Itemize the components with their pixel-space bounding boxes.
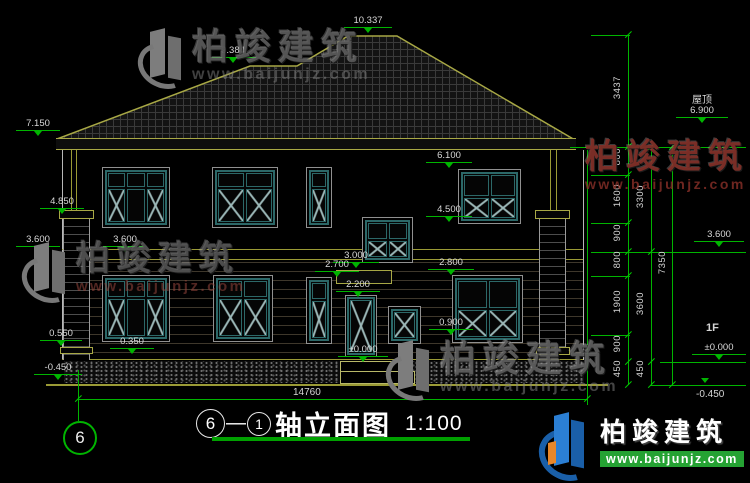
window-frame — [105, 278, 167, 339]
right-pilaster-cap — [535, 210, 570, 219]
dim-extension-line — [591, 223, 630, 224]
level-marker-floor2-b: 3.600 — [103, 235, 147, 252]
right-wall-edge — [583, 150, 584, 360]
window-frame — [105, 170, 167, 225]
dim-chain-line-2 — [651, 147, 652, 385]
dim-value: 900 — [612, 335, 623, 352]
roof-outline — [50, 30, 582, 148]
level-triangle-icon — [34, 131, 42, 136]
level-value: 2.700 — [315, 260, 359, 272]
company-logo: 柏竣建筑 www.baijunjz.com — [540, 412, 748, 480]
dim-value: 3437 — [612, 76, 623, 99]
level-marker-win2-head: 6.100 — [426, 151, 472, 168]
window-frame — [215, 170, 275, 225]
dim-tick — [625, 381, 632, 388]
company-logo-icon — [540, 412, 596, 476]
dim-value: 450 — [612, 360, 623, 377]
level-triangle-icon — [445, 163, 453, 168]
title-separator: — — [226, 412, 246, 435]
level-value: 0.350 — [110, 337, 154, 349]
level-triangle-icon — [701, 378, 709, 383]
level-value: 3.600 — [694, 230, 744, 242]
overall-dim-line — [78, 399, 588, 400]
level-triangle-icon — [333, 272, 341, 277]
level-value: 0.900 — [429, 318, 473, 330]
title-underline — [212, 437, 470, 441]
dim-extension-line — [650, 385, 746, 386]
dim-value: 900 — [612, 224, 623, 241]
level-triangle-icon — [229, 58, 237, 63]
company-website: www.baijunjz.com — [600, 451, 744, 467]
dim-value: 3600 — [635, 292, 646, 315]
level-value: ±0.000 — [338, 345, 388, 357]
title-axis-end-bubble: 1 — [247, 412, 271, 436]
company-logo-text: 柏竣建筑 www.baijunjz.com — [600, 412, 744, 480]
level-triangle-icon — [359, 357, 367, 362]
level-value: 2.800 — [428, 258, 474, 270]
axis-bubble: 6 — [63, 421, 97, 455]
level-marker-ridge: 10.337 — [344, 16, 392, 33]
level-value: 9.384 — [210, 46, 256, 58]
right-pilaster-base — [536, 347, 570, 355]
company-name: 柏竣建筑 — [600, 412, 744, 449]
level-value: 6.100 — [426, 151, 472, 163]
title-scale: 1:100 — [405, 412, 463, 436]
level-marker-zero-center: ±0.000 — [338, 345, 388, 362]
axis-number: 6 — [75, 428, 84, 448]
level-triangle-icon — [364, 28, 372, 33]
dim-value: 800 — [612, 148, 623, 165]
dim-value: 1900 — [612, 290, 623, 313]
dim-value: 3300 — [635, 185, 646, 208]
dim-chain-line-3 — [672, 147, 673, 385]
floor1-label: 1F — [706, 322, 719, 334]
title-axis-start-bubble: 6 — [196, 409, 225, 438]
level-marker-door-head: 2.200 — [336, 280, 380, 297]
window-1f-left — [102, 275, 170, 342]
watermark-brand: 柏竣建筑 — [585, 138, 749, 176]
window-frame — [309, 280, 329, 341]
elevation-drawing-canvas: 10.337 9.384 7.150 4.850 3.600 3.600 0.5… — [0, 0, 750, 483]
window-frame — [391, 309, 418, 341]
level-marker-floor2-a: 3.600 — [16, 235, 60, 252]
level-marker-ledge: 0.550 — [40, 329, 82, 346]
dim-extension-line — [570, 147, 746, 148]
level-marker-left-ridge: 9.384 — [210, 46, 256, 63]
level-triangle-icon — [698, 118, 706, 123]
dim-value: 450 — [635, 360, 646, 377]
level-value: 4.500 — [426, 205, 472, 217]
level-marker-win1-sill: 0.900 — [429, 318, 473, 335]
level-triangle-icon — [354, 292, 362, 297]
level-marker-win2-sill: 4.500 — [426, 205, 472, 222]
left-pilaster-base — [60, 347, 93, 354]
level-triangle-icon — [715, 355, 723, 360]
level-marker-zero-right: ±0.000 — [692, 343, 746, 360]
level-marker-canopy: 2.700 — [315, 260, 359, 277]
level-triangle-icon — [57, 341, 65, 346]
right-downspout — [556, 150, 557, 210]
level-triangle-icon — [34, 247, 42, 252]
level-triangle-icon — [128, 349, 136, 354]
overall-width-value: 14760 — [293, 387, 321, 398]
level-value: 3.600 — [103, 235, 147, 247]
window-1f-mid — [213, 275, 273, 342]
window-2f-mid — [212, 167, 278, 228]
window-2f-left — [102, 167, 170, 228]
level-value: 2.200 — [336, 280, 380, 292]
right-extension-line — [587, 150, 588, 405]
right-downspout — [550, 150, 551, 210]
window-1f-narrow — [306, 277, 332, 344]
level-value: 6.900 — [676, 106, 728, 118]
level-value: 0.550 — [40, 329, 82, 341]
dim-value: 1600 — [612, 184, 623, 207]
ground-floor-line — [62, 359, 583, 360]
level-triangle-icon — [54, 375, 62, 380]
level-value: 4.850 — [40, 197, 84, 209]
level-marker-win1-head: 2.800 — [428, 258, 474, 275]
eave-fascia-band — [56, 138, 576, 150]
dim-value: 7350 — [657, 251, 668, 274]
watermark-site: www.baijunjz.com — [585, 176, 749, 192]
level-value-ground-right: -0.450 — [696, 389, 724, 400]
level-triangle-icon — [447, 330, 455, 335]
level-marker-eave: 7.150 — [16, 119, 60, 136]
dim-extension-line — [591, 35, 630, 36]
level-triangle-icon — [58, 209, 66, 214]
level-marker-pilaster-cap: 4.850 — [40, 197, 84, 214]
level-marker-roof-right: 屋顶 6.900 — [676, 95, 728, 123]
level-marker-ground-left: -0.450 — [34, 363, 82, 380]
window-2f-narrow — [306, 167, 332, 228]
level-value: -0.450 — [34, 363, 82, 375]
window-1f-small — [388, 306, 421, 344]
ground-line — [46, 384, 608, 386]
dim-value: 800 — [612, 251, 623, 268]
level-value: 3.600 — [16, 235, 60, 247]
level-value: 10.337 — [344, 16, 392, 28]
window-frame — [216, 278, 270, 339]
level-marker-plinth: 0.350 — [110, 337, 154, 354]
level-value: ±0.000 — [692, 343, 746, 355]
dim-extension-line — [591, 335, 630, 336]
right-pilaster — [539, 218, 566, 348]
level-triangle-icon — [445, 217, 453, 222]
entry-step-lower — [340, 371, 415, 384]
level-marker-floor2-right: 3.600 — [694, 230, 744, 247]
level-triangle-icon — [715, 242, 723, 247]
level-value: 7.150 — [16, 119, 60, 131]
foundation-hatch — [64, 361, 584, 383]
dim-extension-line — [591, 276, 630, 277]
level-triangle-icon — [121, 247, 129, 252]
dim-extension-line — [591, 175, 630, 176]
level-triangle-icon — [447, 270, 455, 275]
window-frame — [309, 170, 329, 225]
